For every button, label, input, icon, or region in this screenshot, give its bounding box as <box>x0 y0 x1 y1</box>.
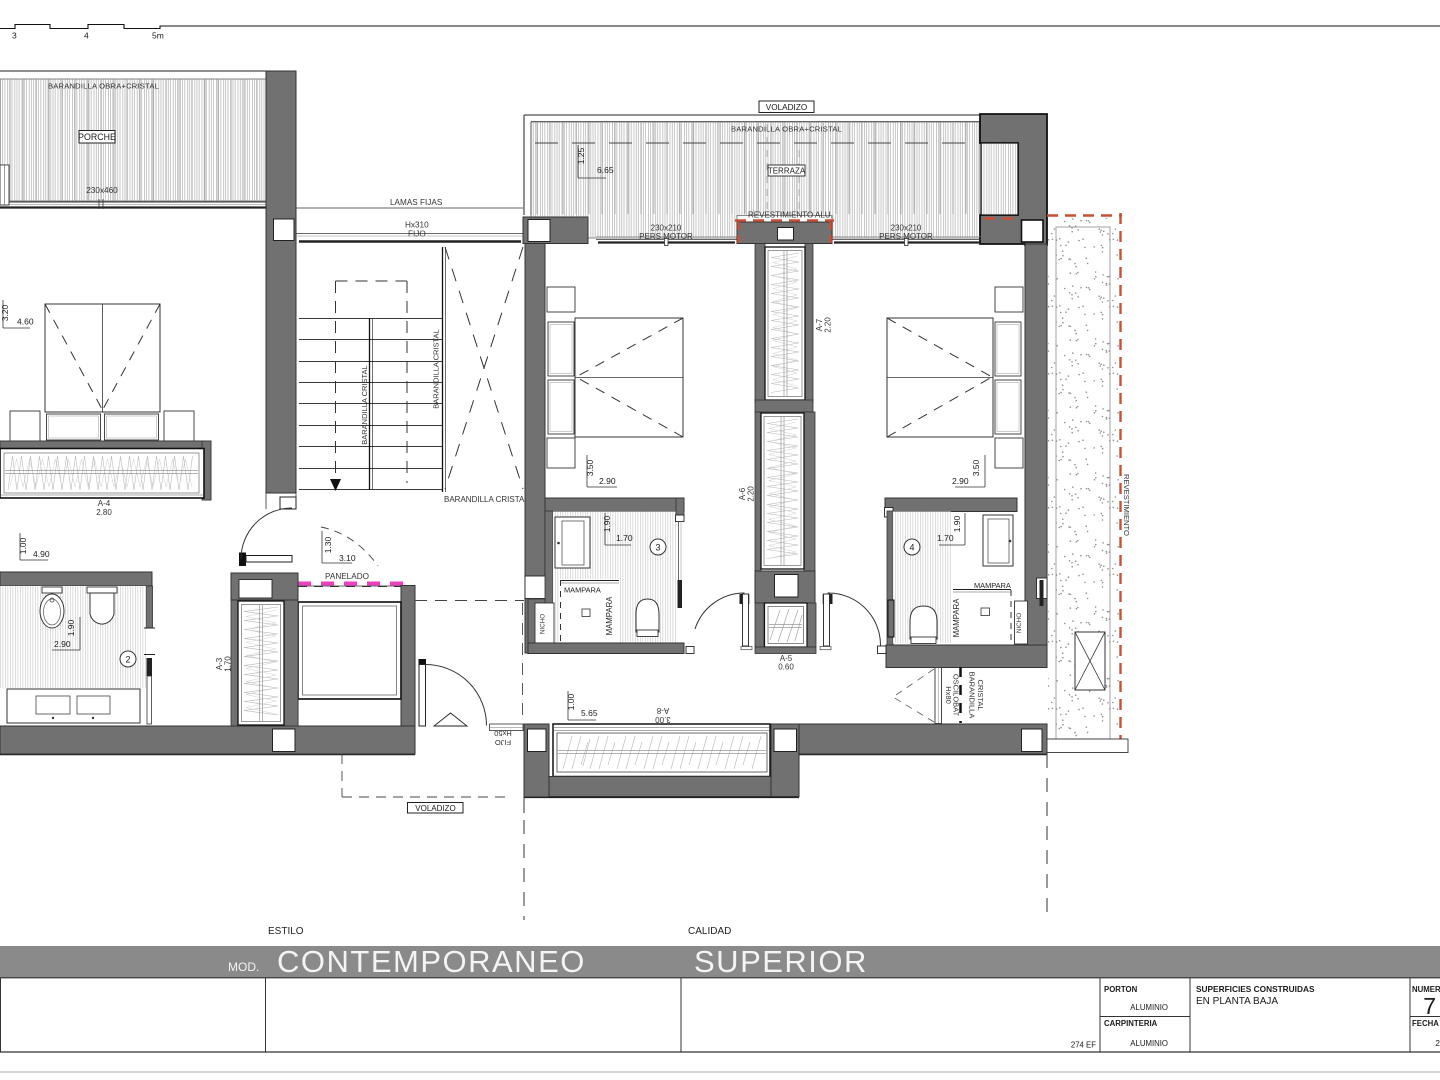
svg-text:ESTILO: ESTILO <box>268 926 304 937</box>
svg-text:1.90: 1.90 <box>66 619 76 636</box>
svg-text:BARANDILLA OBRA+CRISTAL: BARANDILLA OBRA+CRISTAL <box>48 82 159 91</box>
svg-text:MAMPARA: MAMPARA <box>564 586 601 595</box>
svg-text:BARANDILLA OBRA+CRISTAL: BARANDILLA OBRA+CRISTAL <box>731 125 842 134</box>
svg-text:1.70: 1.70 <box>616 533 633 543</box>
svg-text:2: 2 <box>1435 1038 1440 1048</box>
svg-text:BARANDILLA CRISTAL: BARANDILLA CRISTAL <box>432 329 441 408</box>
svg-text:BARANDILLA CRISTAL: BARANDILLA CRISTAL <box>444 495 529 504</box>
svg-text:1.25: 1.25 <box>576 147 586 164</box>
svg-text:CARPINTERIA: CARPINTERIA <box>1104 1019 1158 1028</box>
svg-text:NICHO: NICHO <box>540 614 547 634</box>
svg-text:2.80: 2.80 <box>96 508 112 517</box>
svg-text:CONTEMPORANEO: CONTEMPORANEO <box>277 944 586 979</box>
svg-text:1.30: 1.30 <box>323 536 333 553</box>
svg-text:1.70: 1.70 <box>224 656 233 672</box>
svg-text:230x460: 230x460 <box>86 186 118 195</box>
svg-text:3: 3 <box>12 31 17 41</box>
svg-text:5.65: 5.65 <box>581 708 598 718</box>
svg-text:1.00: 1.00 <box>566 693 576 710</box>
svg-text:ALUMINIO: ALUMINIO <box>1130 1039 1168 1048</box>
svg-text:CRISTAL: CRISTAL <box>976 679 985 710</box>
svg-text:4.90: 4.90 <box>33 549 50 559</box>
svg-text:EN PLANTA BAJA: EN PLANTA BAJA <box>1196 996 1278 1007</box>
svg-text:MOD.: MOD. <box>228 960 259 974</box>
svg-text:MAMPARA: MAMPARA <box>605 596 614 636</box>
svg-text:2.90: 2.90 <box>599 476 616 486</box>
svg-text:REVESTIMIENTO: REVESTIMIENTO <box>1122 474 1131 536</box>
svg-text:0.60: 0.60 <box>778 663 794 672</box>
svg-text:FECHA: FECHA <box>1412 1019 1439 1028</box>
svg-text:4.60: 4.60 <box>17 317 34 327</box>
svg-text:274 EF: 274 EF <box>1071 1041 1096 1050</box>
svg-text:1.70: 1.70 <box>937 533 954 543</box>
svg-text:PORCHE: PORCHE <box>78 132 116 142</box>
svg-text:3.00: 3.00 <box>655 715 671 724</box>
svg-text:BARANDILLA CRISTAL: BARANDILLA CRISTAL <box>360 365 369 444</box>
svg-text:1.90: 1.90 <box>602 515 612 532</box>
svg-text:Hx50: Hx50 <box>494 729 512 738</box>
svg-text:OSCILOBAT: OSCILOBAT <box>952 674 961 717</box>
svg-text:6.65: 6.65 <box>597 165 614 175</box>
svg-text:TERRAZA: TERRAZA <box>768 167 806 176</box>
svg-text:A-8: A-8 <box>656 706 669 715</box>
svg-text:REVESTIMIENTO ALU.: REVESTIMIENTO ALU. <box>748 211 833 220</box>
svg-text:LAMAS FIJAS: LAMAS FIJAS <box>390 198 443 207</box>
svg-text:2.90: 2.90 <box>952 476 969 486</box>
svg-text:2.20: 2.20 <box>824 317 833 333</box>
svg-text:Hx310: Hx310 <box>405 221 429 230</box>
svg-text:PANELADO: PANELADO <box>325 572 369 581</box>
svg-text:VOLADIZO: VOLADIZO <box>766 103 807 112</box>
svg-text:CALIDAD: CALIDAD <box>688 926 731 937</box>
svg-text:SUPERFICIES CONSTRUIDAS: SUPERFICIES CONSTRUIDAS <box>1196 984 1315 994</box>
svg-text:3.20: 3.20 <box>0 304 10 321</box>
svg-text:1.90: 1.90 <box>952 515 962 532</box>
svg-text:2.20: 2.20 <box>747 486 756 502</box>
svg-text:SUPERIOR: SUPERIOR <box>694 944 868 979</box>
svg-text:MAMPARA: MAMPARA <box>974 581 1011 590</box>
svg-text:2.90: 2.90 <box>54 639 71 649</box>
svg-text:2: 2 <box>125 655 130 665</box>
svg-text:4: 4 <box>909 543 914 553</box>
svg-text:1.00: 1.00 <box>18 537 28 554</box>
svg-text:3.10: 3.10 <box>339 553 356 563</box>
svg-text:FIJO: FIJO <box>408 230 426 239</box>
svg-text:5m: 5m <box>152 31 164 41</box>
svg-text:MAMPARA: MAMPARA <box>952 598 961 638</box>
svg-text:3: 3 <box>655 543 660 553</box>
svg-text:VOLADIZO: VOLADIZO <box>415 804 455 813</box>
svg-text:FIJO: FIJO <box>495 738 511 747</box>
svg-text:3.50: 3.50 <box>971 459 981 476</box>
svg-text:NICHO: NICHO <box>1016 613 1023 633</box>
svg-text:PORTON: PORTON <box>1104 985 1138 994</box>
svg-text:3.50: 3.50 <box>585 459 595 476</box>
svg-text:A-4: A-4 <box>98 499 111 508</box>
svg-text:ALUMINIO: ALUMINIO <box>1130 1003 1168 1012</box>
svg-text:7: 7 <box>1423 993 1436 1019</box>
svg-text:BARANDILLA: BARANDILLA <box>968 672 977 719</box>
svg-text:4: 4 <box>84 31 89 41</box>
